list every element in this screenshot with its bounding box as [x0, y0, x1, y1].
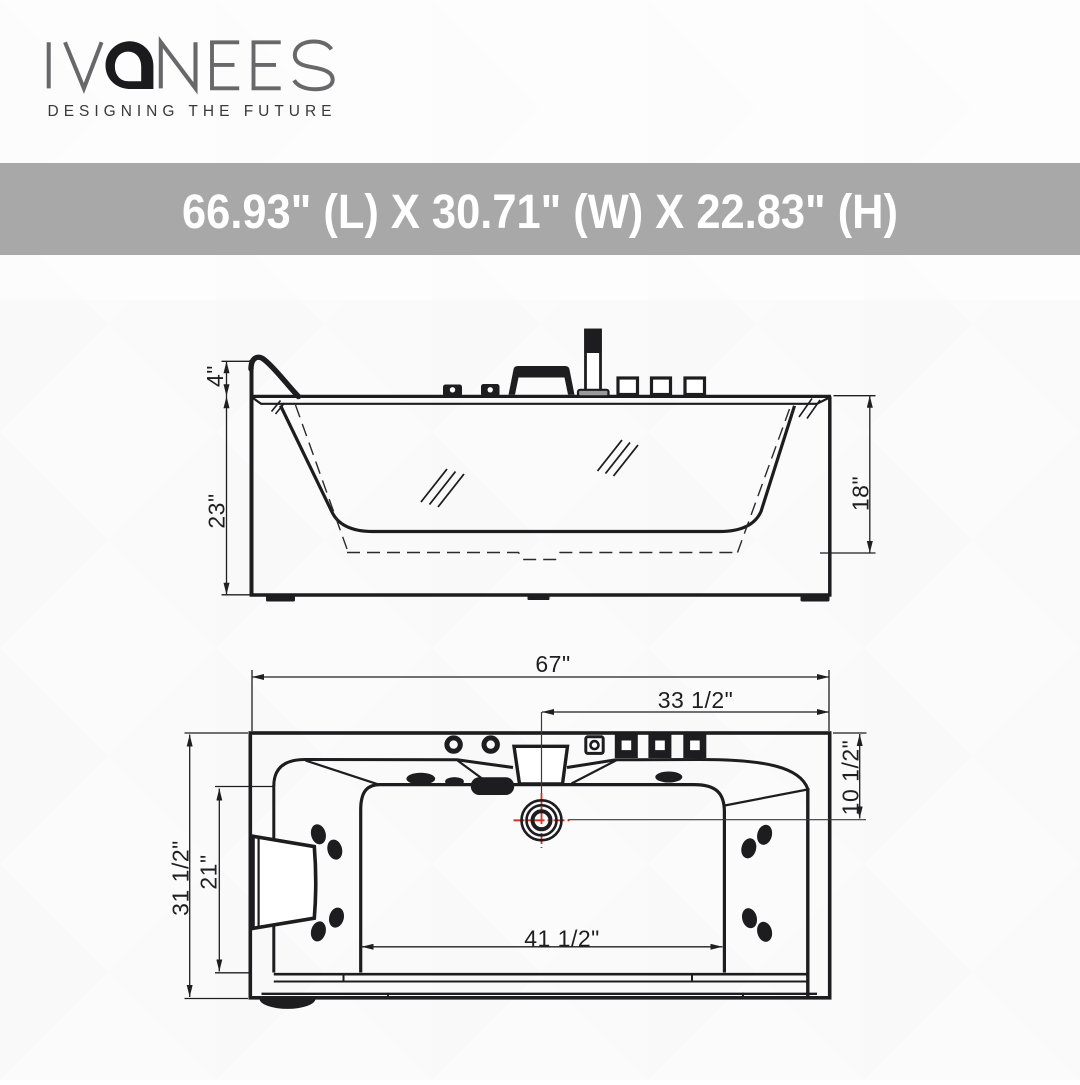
svg-text:31 1/2": 31 1/2" [168, 840, 194, 916]
svg-text:33 1/2": 33 1/2" [658, 687, 734, 713]
svg-text:4": 4" [202, 365, 228, 387]
svg-text:21": 21" [196, 854, 222, 889]
svg-text:10 1/2": 10 1/2" [838, 740, 864, 816]
svg-text:23": 23" [204, 493, 230, 528]
svg-text:66.93" (L) X 30.71" (W) X 22.8: 66.93" (L) X 30.71" (W) X 22.83" (H) [182, 186, 898, 239]
svg-text:41 1/2": 41 1/2" [524, 926, 600, 952]
svg-text:18": 18" [848, 476, 874, 511]
svg-text:67": 67" [535, 651, 570, 677]
